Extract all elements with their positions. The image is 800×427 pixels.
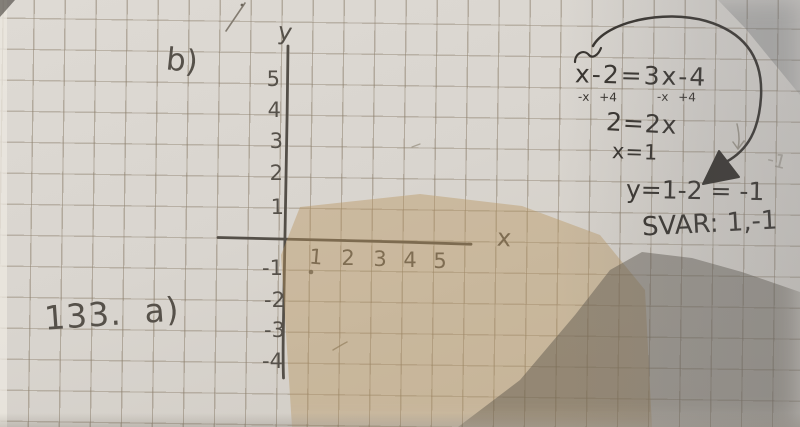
y-tick-neg2: -2 [251, 290, 285, 311]
solution-operation-right: -x +4 [657, 91, 696, 104]
y-tick-4: 4 [255, 100, 281, 121]
solution-step2: 2=2x [605, 109, 678, 138]
notebook-page: b) 133. a) y x 5 4 3 2 1 -1 -2 -3 -4 1 2… [0, 0, 800, 427]
y-tick-2: 2 [257, 163, 283, 184]
x-tick-2: 2 [338, 248, 358, 269]
solution-answer: SVAR: 1,-1 [641, 207, 778, 240]
x-tick-1: 1 [305, 246, 327, 269]
solution-equation: x-2=3x-4 [575, 61, 708, 89]
solution-operation-left: -x +4 [578, 91, 617, 104]
y-tick-neg4: -4 [249, 351, 283, 372]
y-tick-5: 5 [254, 69, 280, 90]
exercise-label: 133. a) [43, 292, 181, 334]
part-label: b) [164, 44, 199, 78]
x-axis-label: x [496, 226, 512, 251]
x-tick-4: 4 [400, 250, 420, 271]
solution-step4: y=1-2 = -1 [626, 177, 765, 204]
x-tick-5: 5 [430, 251, 450, 272]
solution-step3: x=1 [612, 141, 659, 164]
y-tick-neg3: -3 [251, 320, 285, 341]
x-tick-3: 3 [370, 249, 390, 270]
y-tick-1: 1 [258, 197, 284, 218]
y-tick-neg1: -1 [249, 258, 283, 279]
y-tick-3: 3 [257, 131, 283, 152]
